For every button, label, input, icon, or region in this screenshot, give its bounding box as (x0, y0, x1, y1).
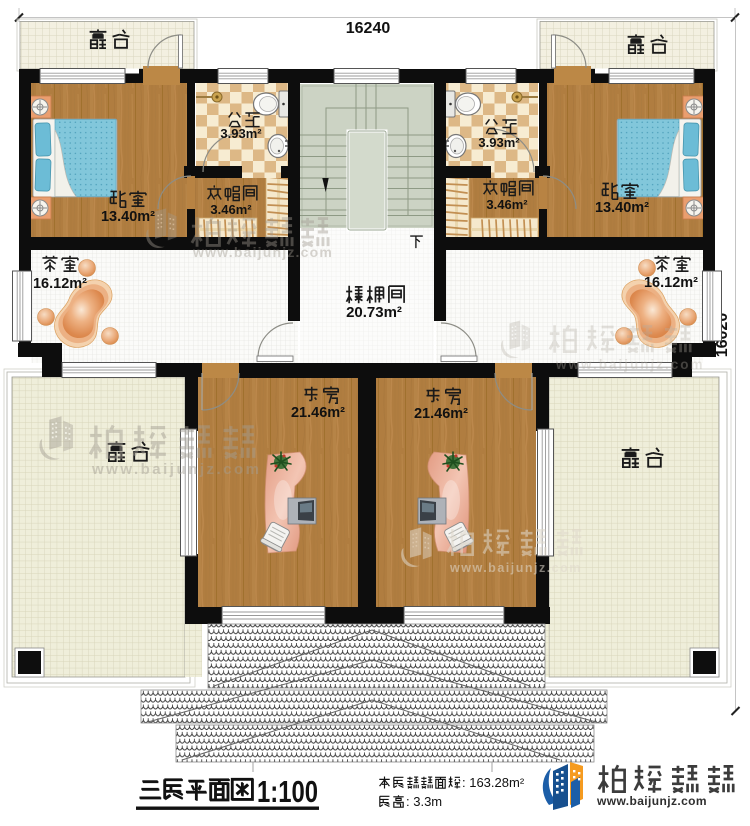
svg-text:www.baijunjz.com: www.baijunjz.com (91, 461, 261, 478)
svg-text:16.12m²: 16.12m² (644, 275, 698, 291)
svg-text:www.baijunjz.com: www.baijunjz.com (449, 561, 582, 575)
svg-text:3.93m²: 3.93m² (220, 126, 262, 141)
svg-text:16.12m²: 16.12m² (33, 276, 87, 292)
svg-text:www.baijunjz.com: www.baijunjz.com (596, 794, 707, 808)
svg-text:www.baijunjz.com: www.baijunjz.com (192, 244, 333, 260)
svg-text:21.46m²: 21.46m² (291, 405, 345, 421)
svg-text:21.46m²: 21.46m² (414, 406, 468, 422)
svg-text:: 3.3m: : 3.3m (406, 794, 442, 809)
svg-text:3.46m²: 3.46m² (210, 202, 252, 217)
svg-text:3.46m²: 3.46m² (486, 197, 528, 212)
svg-text:1:100: 1:100 (257, 774, 318, 809)
svg-text:www.baijunjz.com: www.baijunjz.com (555, 357, 705, 372)
svg-text:16240: 16240 (346, 20, 391, 37)
svg-text:3.93m²: 3.93m² (478, 135, 520, 150)
svg-text:13.40m²: 13.40m² (101, 209, 155, 225)
svg-text:13.40m²: 13.40m² (595, 200, 649, 216)
svg-text:20.73m²: 20.73m² (346, 304, 402, 321)
svg-text:: 163.28m²: : 163.28m² (462, 775, 525, 790)
